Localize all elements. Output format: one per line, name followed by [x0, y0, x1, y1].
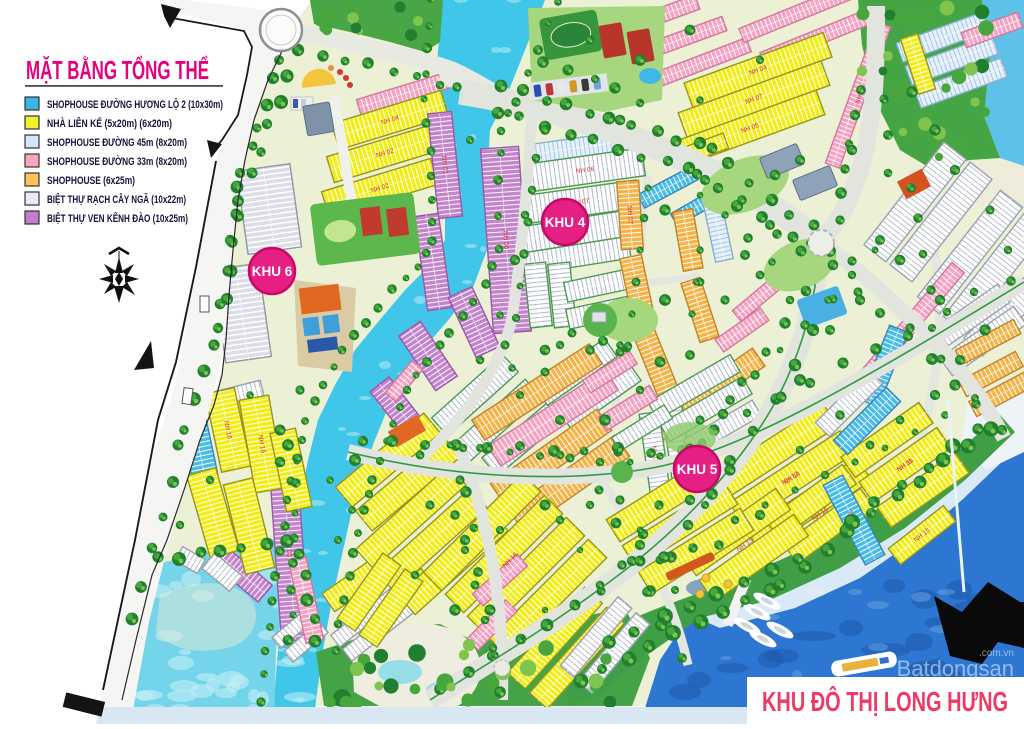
svg-text:KHU 6: KHU 6: [252, 264, 293, 279]
svg-text:KHU ĐÔ THỊ LONG HƯNG: KHU ĐÔ THỊ LONG HƯNG: [762, 685, 1008, 717]
svg-text:KHU 4: KHU 4: [545, 215, 586, 230]
svg-text:BIỆT THỰ RẠCH CÂY NGÃ (10x22m): BIỆT THỰ RẠCH CÂY NGÃ (10x22m): [47, 193, 186, 206]
svg-text:NH 07: NH 07: [625, 206, 633, 225]
svg-text:SHOPHOUSE (6x25m): SHOPHOUSE (6x25m): [47, 175, 135, 187]
svg-text:MẶT BẰNG TỔNG THỂ: MẶT BẰNG TỔNG THỂ: [26, 55, 209, 85]
svg-text:KHU 5: KHU 5: [677, 462, 718, 477]
svg-text:SHOPHOUSE ĐƯỜNG HƯƠNG LỘ 2 (10: SHOPHOUSE ĐƯỜNG HƯƠNG LỘ 2 (10x30m): [47, 98, 223, 111]
svg-text:NHÀ LIÊN KẾ (5x20m) (6x20m): NHÀ LIÊN KẾ (5x20m) (6x20m): [47, 117, 172, 130]
svg-text:.com.vn: .com.vn: [979, 648, 1014, 659]
svg-text:SHOPHOUSE ĐƯỜNG 45m (8x20m): SHOPHOUSE ĐƯỜNG 45m (8x20m): [47, 136, 187, 149]
svg-text:SHOPHOUSE ĐƯỜNG 33m (8x20m): SHOPHOUSE ĐƯỜNG 33m (8x20m): [47, 155, 187, 168]
svg-text:BIỆT THỰ VEN KÊNH ĐÀO (10x25m): BIỆT THỰ VEN KÊNH ĐÀO (10x25m): [47, 212, 188, 225]
